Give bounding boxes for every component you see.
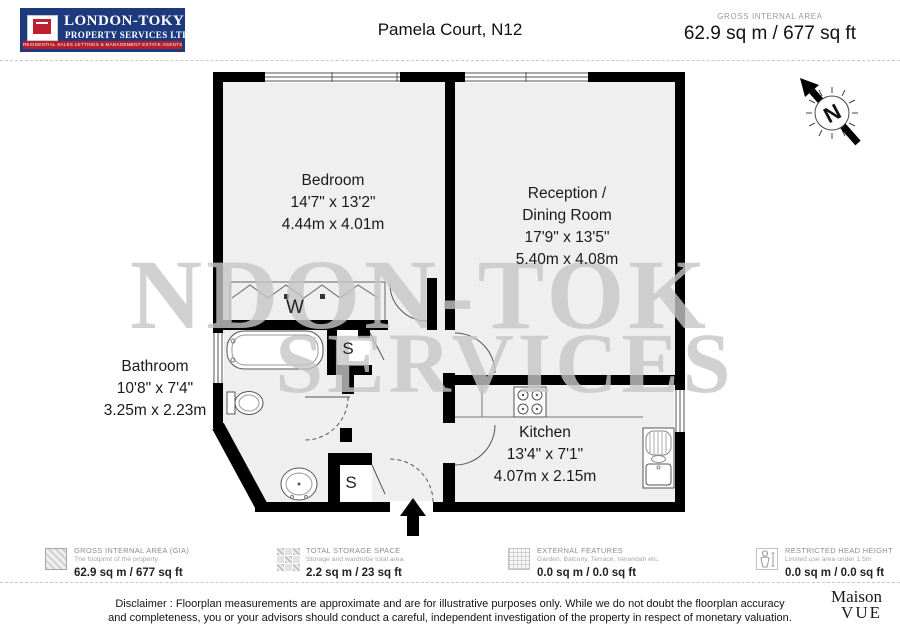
legend-item-headheight: RESTRICTED HEAD HEIGHT Limited use area … [756, 546, 896, 580]
basin-icon [281, 468, 317, 500]
storage1-label: S [334, 339, 362, 359]
bathroom-dims-imperial: 10'8" x 7'4" [65, 378, 245, 400]
legend-item-gia: GROSS INTERNAL AREA (GIA) The footprint … [45, 546, 270, 580]
legend-title: EXTERNAL FEATURES [537, 546, 659, 555]
bedroom-label: Bedroom 14'7" x 13'2" 4.44m x 4.01m [243, 170, 423, 236]
kitchen-dims-imperial: 13'4" x 7'1" [455, 444, 635, 466]
legend-item-external: EXTERNAL FEATURES Garden, Balcony, Terra… [508, 546, 743, 580]
legend-subtitle: The footprint of the property [74, 556, 189, 563]
sink-icon [643, 428, 674, 488]
floorplan-page: LONDON-TOKYO PROPERTY SERVICES LTD. RESI… [0, 0, 900, 636]
grid-square-icon [508, 548, 530, 570]
legend-subtitle: Garden, Balcony, Terrace, Verandah etc. [537, 556, 659, 563]
storage2-label: S [337, 473, 365, 493]
bathroom-name: Bathroom [65, 356, 245, 378]
legend-value: 2.2 sq m / 23 sq ft [306, 567, 404, 579]
legend-value: 0.0 sq m / 0.0 sq ft [537, 567, 659, 579]
legend-title: RESTRICTED HEAD HEIGHT [785, 546, 893, 555]
kitchen-name: Kitchen [455, 422, 635, 444]
bedroom-name: Bedroom [243, 170, 423, 192]
hatched-square-icon [45, 548, 67, 570]
reception-dims-metric: 5.40m x 4.08m [477, 249, 657, 271]
bathroom-label: Bathroom 10'8" x 7'4" 3.25m x 2.23m [65, 356, 245, 422]
legend-value: 62.9 sq m / 677 sq ft [74, 567, 189, 579]
bathroom-dims-metric: 3.25m x 2.23m [65, 400, 245, 422]
wardrobe-label: W [280, 297, 310, 319]
legend-item-storage: TOTAL STORAGE SPACE Storage and wardrobe… [277, 546, 502, 580]
legend-subtitle: Storage and wardrobe total area [306, 556, 404, 563]
watermark-line2: SERVICES [275, 315, 734, 411]
kitchen-dims-metric: 4.07m x 2.15m [455, 466, 635, 488]
maisonvue-logo: Maison VUE [831, 589, 882, 621]
brand-line2: VUE [831, 605, 882, 621]
storage-blocks-icon [277, 548, 299, 570]
person-height-icon [756, 548, 778, 570]
reception-label: Reception / Dining Room 17'9" x 13'5" 5.… [477, 183, 657, 271]
bedroom-dims-metric: 4.44m x 4.01m [243, 214, 423, 236]
kitchen-label: Kitchen 13'4" x 7'1" 4.07m x 2.15m [455, 422, 635, 488]
bottom-divider [0, 582, 900, 583]
legend-value: 0.0 sq m / 0.0 sq ft [785, 567, 893, 579]
legend-title: TOTAL STORAGE SPACE [306, 546, 404, 555]
legend-subtitle: Limited use area under 1.5m [785, 556, 893, 563]
disclaimer-line1: Disclaimer : Floorplan measurements are … [0, 597, 900, 611]
disclaimer-line2: and completeness, you or your advisors s… [0, 611, 900, 625]
disclaimer: Disclaimer : Floorplan measurements are … [0, 597, 900, 625]
floorplan-drawing: N NDON-TOK SERVICES [0, 0, 900, 636]
legend-title: GROSS INTERNAL AREA (GIA) [74, 546, 189, 555]
reception-dims-imperial: 17'9" x 13'5" [477, 227, 657, 249]
compass-icon: N [800, 78, 858, 143]
reception-name: Reception / Dining Room [507, 183, 627, 227]
bedroom-dims-imperial: 14'7" x 13'2" [243, 192, 423, 214]
